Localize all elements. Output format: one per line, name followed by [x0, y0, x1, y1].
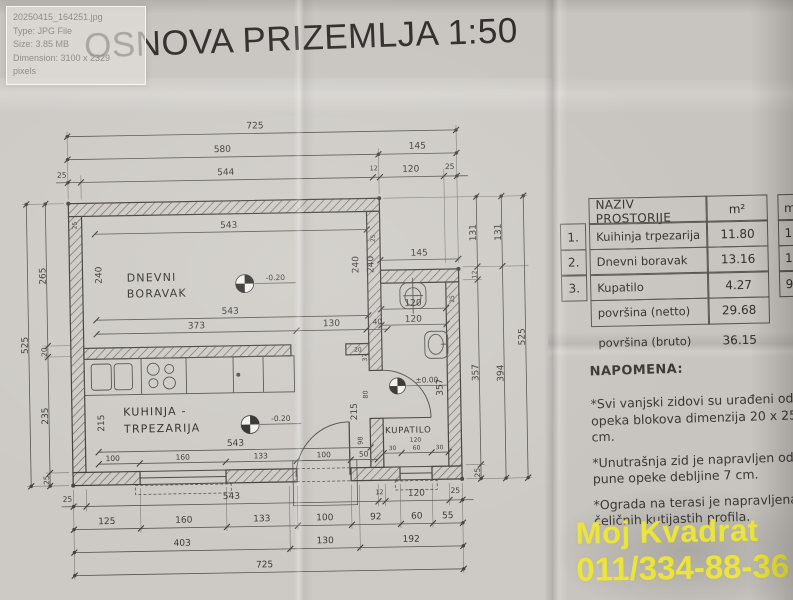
wall-dim-label: 25	[72, 222, 79, 230]
notes-heading: NAPOMENA:	[589, 357, 793, 381]
dim-label: 130	[323, 319, 341, 329]
stove-burner-icon	[163, 377, 175, 389]
dim-label: 133	[253, 451, 268, 460]
dim-label: 131	[494, 223, 504, 240]
dim-label: 235	[41, 407, 51, 424]
dim-label: 525	[21, 337, 31, 354]
dim-label: 25	[63, 495, 73, 504]
dim-label: 544	[217, 168, 235, 178]
dim-label: 145	[411, 248, 428, 258]
dim-label: 357	[471, 364, 481, 381]
dim-label: 100	[316, 450, 331, 459]
sink-icon	[114, 364, 132, 390]
dim-label: 543	[227, 439, 244, 449]
file-info-tooltip: 20250415_164251.jpg Type: JPG File Size:…	[6, 6, 146, 85]
room-label-bath: KUPATILO	[385, 425, 432, 436]
row-number: 2.	[560, 249, 587, 277]
branding-name: Moj Kvadrat	[575, 512, 788, 551]
dim-label: 60	[411, 512, 423, 522]
dim-label: 30	[436, 444, 444, 451]
dim-label: 25	[473, 468, 482, 478]
dim-label: 543	[220, 221, 237, 231]
dim-label: 120	[405, 315, 423, 325]
dim-label: 265	[38, 267, 48, 284]
wall-dim-label: 25	[370, 234, 377, 242]
dim-label: 25	[445, 162, 455, 171]
wall-dim-label: 20	[354, 347, 362, 354]
bruto-label: površina (bruto)	[591, 327, 711, 356]
dim-label: 403	[174, 539, 191, 549]
room-extra: 15	[779, 244, 793, 272]
tooltip-dimension: Dimension: 3100 x 2329	[13, 52, 139, 66]
room-label-living: BORAVAK	[127, 287, 187, 301]
tooltip-filename: 20250415_164251.jpg	[13, 11, 139, 25]
dim-label: 30	[389, 445, 397, 452]
tooltip-size: Size: 3.85 MB	[13, 38, 139, 52]
dim-label: 215	[97, 414, 107, 431]
dim-label: 92	[370, 512, 382, 522]
dim-label: 240	[351, 256, 361, 274]
room-label-living: DNEVNI	[127, 271, 177, 285]
wall-dim-label: 25	[449, 295, 456, 303]
dim-label: 80	[362, 390, 370, 398]
stove-burner-icon	[165, 364, 174, 373]
dim-label: 240	[366, 255, 376, 273]
tooltip-pixels: pixels	[13, 65, 139, 79]
dim-label: 20	[40, 347, 49, 357]
dim-label: 55	[442, 511, 454, 521]
header-extra: m	[778, 193, 793, 221]
dim-label: 240	[94, 266, 104, 284]
stove-burner-icon	[149, 379, 158, 388]
dim-label: 25	[57, 171, 67, 180]
dim-label: 125	[98, 517, 115, 527]
dim-label: 525	[518, 328, 528, 345]
washbasin-icon	[425, 331, 448, 358]
dim-label: 120	[410, 437, 422, 444]
netto-value: 29.68	[708, 296, 771, 324]
dim-label: 120	[402, 165, 420, 175]
walls	[68, 197, 462, 486]
dim-label: 543	[222, 307, 239, 317]
dim-label: 160	[175, 516, 193, 526]
room-area: 13.16	[707, 245, 770, 273]
level-label: -0.20	[271, 414, 291, 423]
header-m2: m²	[706, 194, 769, 222]
dim-label: 60	[413, 445, 421, 452]
room-extra: 15	[778, 219, 793, 247]
floor-plan-drawing: 725 580 145 25 544 12 120 25 145 525 265…	[0, 0, 560, 600]
sink-icon	[91, 364, 111, 390]
dim-label: 120	[404, 299, 422, 309]
room-label-kitchen: TRPEZARIJA	[123, 421, 201, 435]
dim-label: 37	[361, 353, 369, 361]
dim-label: 725	[246, 121, 263, 131]
branding: Moj Kvadrat 011/334-88-36	[575, 512, 789, 589]
netto-label: površina (netto)	[590, 297, 710, 326]
dim-label: 130	[317, 536, 335, 546]
dim-label: 25	[42, 475, 51, 485]
dim-label: 580	[214, 145, 232, 155]
dim-label: 145	[409, 141, 426, 151]
dim-label: 50	[359, 449, 369, 458]
bruto-value: 36.15	[708, 326, 771, 354]
dim-label: 98	[356, 436, 364, 444]
dim-label: 100	[316, 513, 334, 523]
room-label-kitchen: KUHINJA -	[123, 405, 187, 419]
row-number: 1.	[560, 224, 587, 252]
dim-label: 40	[373, 317, 383, 326]
table-bruto-row: površina (bruto) 36.15	[562, 325, 793, 358]
dim-label: 215	[350, 403, 360, 420]
level-label: ±0.00	[415, 375, 438, 384]
level-label: -0.20	[266, 273, 286, 282]
tooltip-type: Type: JPG File	[13, 25, 139, 39]
room-table: NAZIV PROSTORIJE m² m 1. Kuihinja trpeza…	[559, 193, 793, 357]
room-extra: 9.	[779, 269, 793, 297]
dim-label: 133	[253, 514, 270, 524]
table-netto-row: površina (netto) 29.68	[561, 295, 793, 328]
dim-label: 543	[223, 492, 240, 502]
dim-label: 12	[370, 164, 378, 172]
room-area: 4.27	[707, 271, 770, 299]
note-item: *Svi vanjski zidovi su urađeni od opeka …	[590, 390, 793, 446]
dim-label: 12	[471, 270, 479, 278]
dim-label: 192	[403, 535, 420, 545]
note-item: *Unutrašnja zid je napravljen od pune op…	[592, 448, 793, 488]
dim-label: 100	[105, 454, 120, 463]
dim-label: 394	[496, 364, 506, 382]
dim-label: 12	[375, 488, 383, 496]
dim-label: 131	[469, 224, 479, 241]
dim-label: 120	[408, 488, 426, 498]
room-area: 11.80	[706, 220, 769, 248]
kitchen-counter	[84, 356, 295, 396]
dim-label: 25	[450, 486, 460, 495]
dim-label: 725	[256, 560, 273, 570]
photo-of-floorplan: { "tooltip": { "filename": "20250415_164…	[0, 0, 793, 600]
dim-label: 373	[188, 321, 205, 331]
stove-burner-icon	[147, 363, 159, 375]
row-number: 3.	[561, 274, 588, 302]
dim-label: 160	[175, 453, 190, 462]
branding-phone: 011/334-88-36	[576, 547, 789, 588]
